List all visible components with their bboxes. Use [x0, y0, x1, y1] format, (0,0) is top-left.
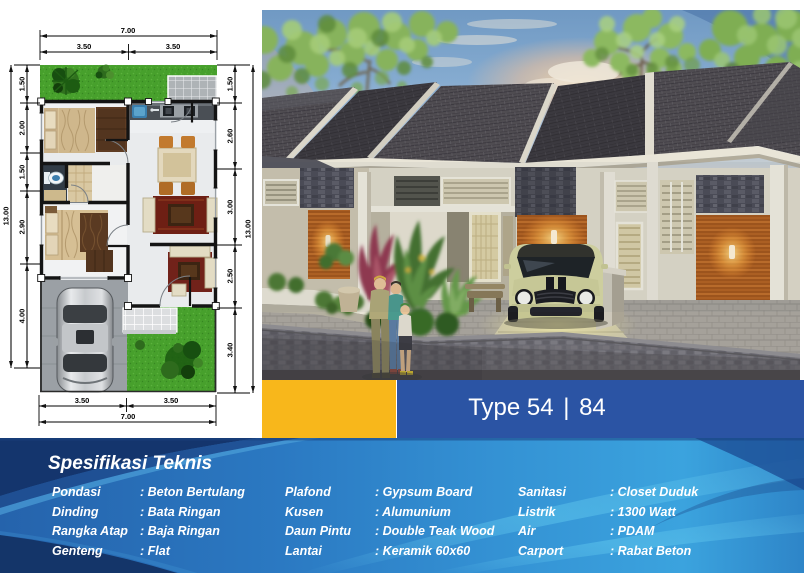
svg-text:3.50: 3.50: [166, 42, 181, 51]
svg-text:1.50: 1.50: [18, 165, 27, 180]
svg-text:1.50: 1.50: [18, 77, 27, 92]
svg-text:2.90: 2.90: [18, 220, 27, 235]
svg-text:7.00: 7.00: [121, 412, 136, 421]
svg-text:13.00: 13.00: [244, 220, 253, 239]
svg-text:3.50: 3.50: [77, 42, 92, 51]
svg-text:1.50: 1.50: [226, 77, 235, 92]
svg-text:3.00: 3.00: [226, 200, 235, 215]
svg-text:3.40: 3.40: [226, 343, 235, 358]
svg-text:2.60: 2.60: [226, 129, 235, 144]
svg-text:13.00: 13.00: [2, 207, 11, 226]
svg-text:3.50: 3.50: [75, 396, 90, 405]
svg-text:2.50: 2.50: [226, 269, 235, 284]
svg-text:3.50: 3.50: [164, 396, 179, 405]
svg-text:2.00: 2.00: [18, 121, 27, 136]
svg-text:7.00: 7.00: [121, 26, 136, 35]
svg-text:4.00: 4.00: [18, 309, 27, 324]
